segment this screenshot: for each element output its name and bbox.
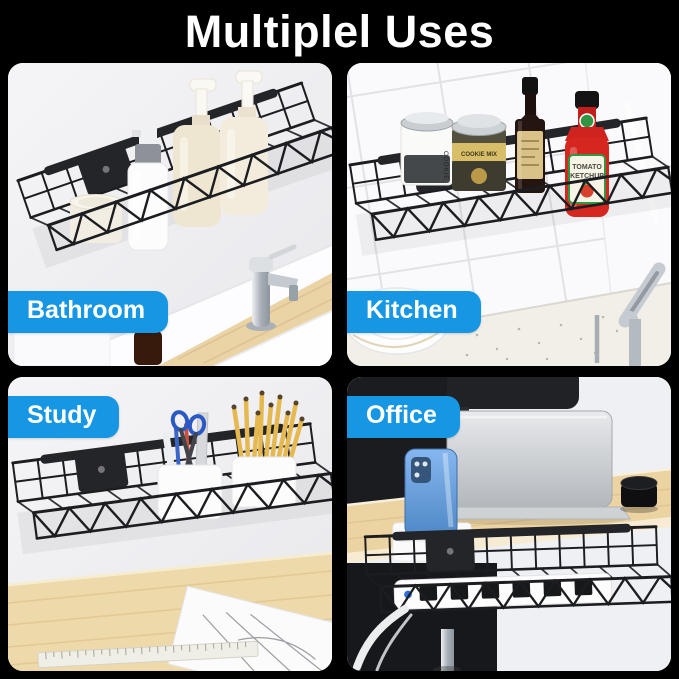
office-panel: Office — [347, 377, 671, 671]
study-badge: Study — [8, 396, 119, 438]
photo-grid: Bathroom COOKIE — [8, 63, 671, 671]
cookie-jar-label: COOKIE — [442, 151, 448, 180]
bathroom-badge: Bathroom — [8, 291, 168, 333]
page-title: Multiplel Uses — [0, 0, 679, 63]
office-badge: Office — [347, 396, 460, 438]
product-collage: { "title": "Multiplel Uses", "colors": {… — [0, 0, 679, 679]
spice-jar-label: COOKIE MIX — [461, 152, 497, 158]
ketchup-label-line1: TOMATO — [572, 164, 602, 171]
bathroom-panel: Bathroom — [8, 63, 332, 366]
kitchen-panel: COOKIE COOKIE MIX — [347, 63, 671, 366]
desk-speaker — [620, 477, 658, 514]
kitchen-badge: Kitchen — [347, 291, 481, 333]
spice-jar: COOKIE MIX — [452, 114, 506, 191]
cookie-jar: COOKIE — [401, 112, 453, 185]
study-panel: Study — [8, 377, 332, 671]
smartphone — [405, 449, 457, 537]
